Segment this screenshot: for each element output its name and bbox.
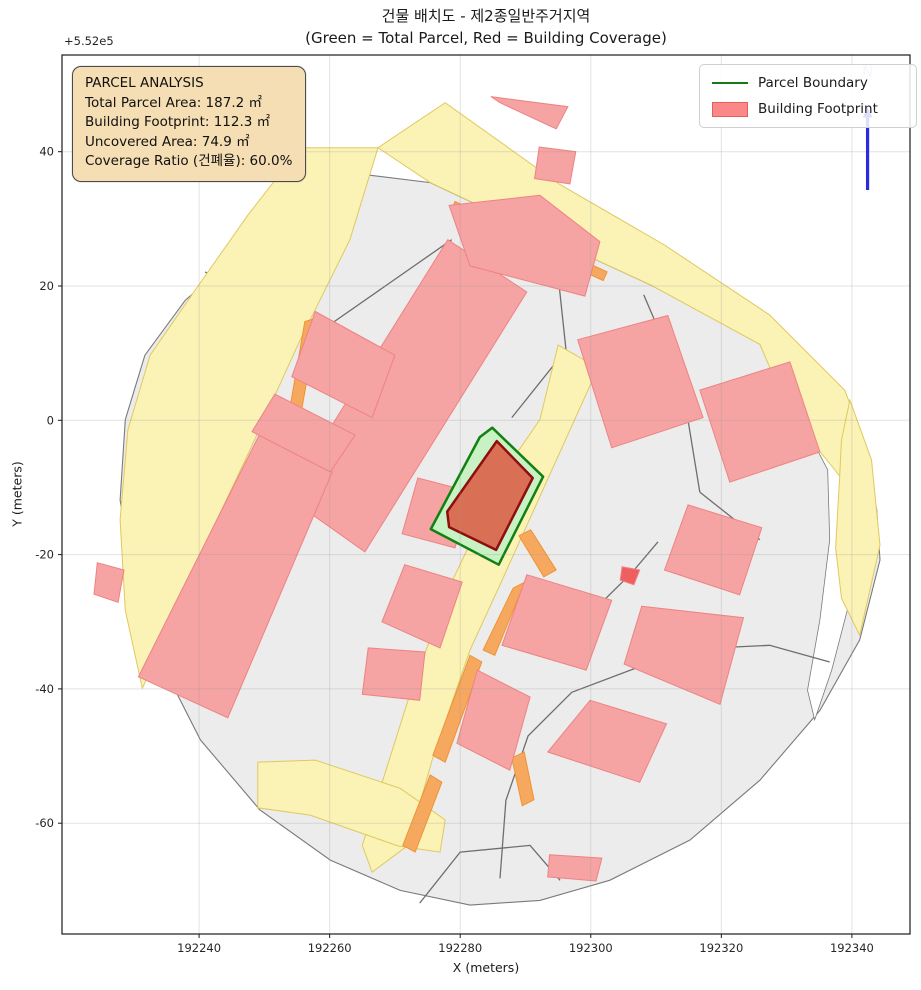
- y-axis-offset-label: +5.52e5: [64, 34, 114, 48]
- parcel-analysis-title: PARCEL ANALYSIS: [85, 74, 292, 94]
- y-tick-label: 20: [39, 279, 54, 293]
- road: [836, 400, 880, 635]
- x-tick-label: 192240: [177, 941, 221, 955]
- y-axis-label: Y (meters): [10, 461, 25, 526]
- legend-item-building-footprint: Building Footprint: [712, 101, 904, 117]
- y-tick-label: 0: [47, 413, 54, 427]
- building: [94, 563, 124, 603]
- x-tick-label: 192340: [830, 941, 874, 955]
- building: [535, 147, 576, 184]
- y-tick-label: -20: [35, 548, 54, 562]
- legend: Parcel Boundary Building Footprint: [699, 64, 917, 128]
- y-tick-label: 40: [39, 145, 54, 159]
- x-tick-label: 192300: [569, 941, 613, 955]
- map-layers: N: [62, 55, 910, 934]
- stat-building-footprint: Building Footprint: 112.3 ㎡: [85, 113, 292, 133]
- legend-label-parcel-boundary: Parcel Boundary: [758, 75, 868, 91]
- building: [548, 855, 602, 881]
- y-tick-label: -60: [35, 816, 54, 830]
- parcel-boundary-line-swatch: [712, 82, 748, 84]
- legend-item-parcel-boundary: Parcel Boundary: [712, 75, 904, 91]
- stat-uncovered-area: Uncovered Area: 74.9 ㎡: [85, 133, 292, 153]
- parcel-analysis-box: PARCEL ANALYSIS Total Parcel Area: 187.2…: [72, 66, 306, 182]
- building: [491, 97, 568, 129]
- legend-label-building-footprint: Building Footprint: [758, 101, 878, 117]
- y-tick-label: -40: [35, 682, 54, 696]
- x-tick-label: 192260: [308, 941, 352, 955]
- building-footprint-patch-swatch: [712, 102, 748, 117]
- x-tick-label: 192320: [699, 941, 743, 955]
- x-axis-label: X (meters): [62, 960, 910, 975]
- building-layout-figure: 건물 배치도 - 제2종일반주거지역 (Green = Total Parcel…: [0, 0, 921, 990]
- stat-coverage-ratio: Coverage Ratio (건폐율): 60.0%: [85, 152, 292, 172]
- stat-total-parcel-area: Total Parcel Area: 187.2 ㎡: [85, 94, 292, 114]
- x-tick-label: 192280: [438, 941, 482, 955]
- building: [362, 648, 425, 700]
